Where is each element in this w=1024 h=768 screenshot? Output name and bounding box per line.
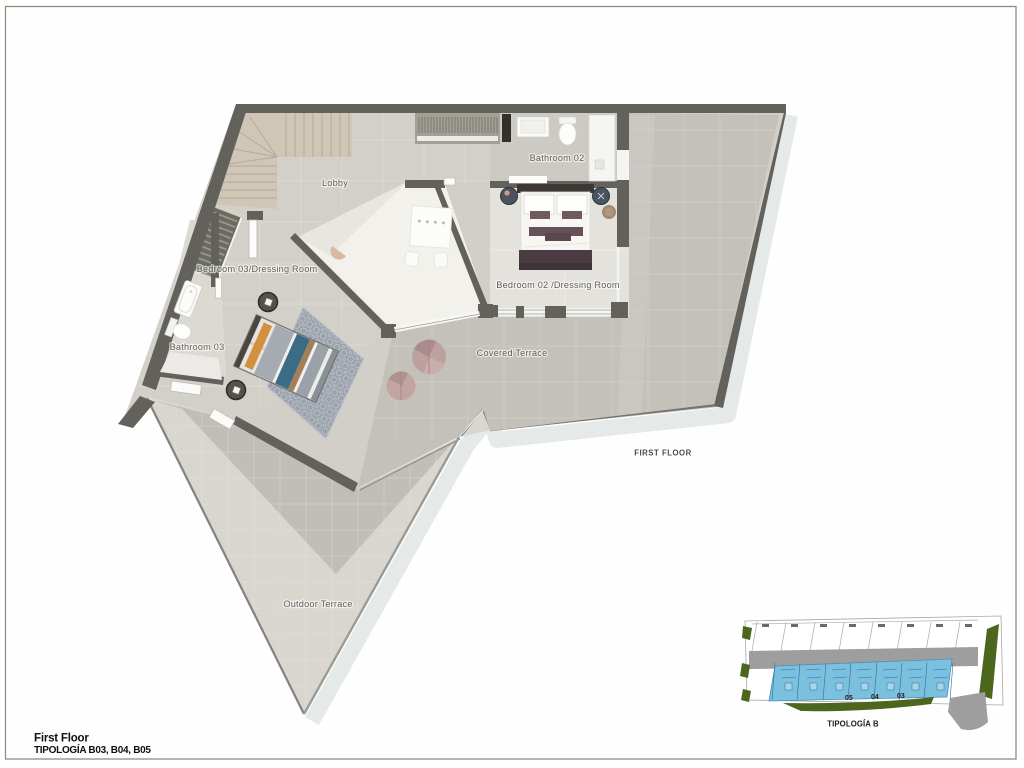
svg-text:03: 03 — [897, 693, 905, 700]
svg-text:TIPOLOGÍA B03, B04, B05: TIPOLOGÍA B03, B04, B05 — [34, 743, 151, 756]
svg-text:Covered Terrace: Covered Terrace — [477, 348, 548, 358]
svg-text:Bathroom 03: Bathroom 03 — [170, 342, 225, 352]
svg-text:Bathroom 02: Bathroom 02 — [530, 153, 585, 163]
svg-text:Lobby: Lobby — [322, 178, 348, 188]
svg-text:First Floor: First Floor — [34, 733, 89, 745]
svg-text:05: 05 — [845, 695, 853, 702]
svg-text:04: 04 — [871, 694, 879, 701]
svg-text:TIPOLOGÍA B: TIPOLOGÍA B — [827, 720, 879, 729]
svg-text:Outdoor Terrace: Outdoor Terrace — [283, 599, 352, 609]
svg-text:Bedroom 02 /Dressing Room: Bedroom 02 /Dressing Room — [496, 280, 620, 290]
svg-text:FIRST FLOOR: FIRST FLOOR — [634, 449, 691, 458]
svg-text:Bedroom 03/Dressing Room: Bedroom 03/Dressing Room — [197, 264, 318, 274]
